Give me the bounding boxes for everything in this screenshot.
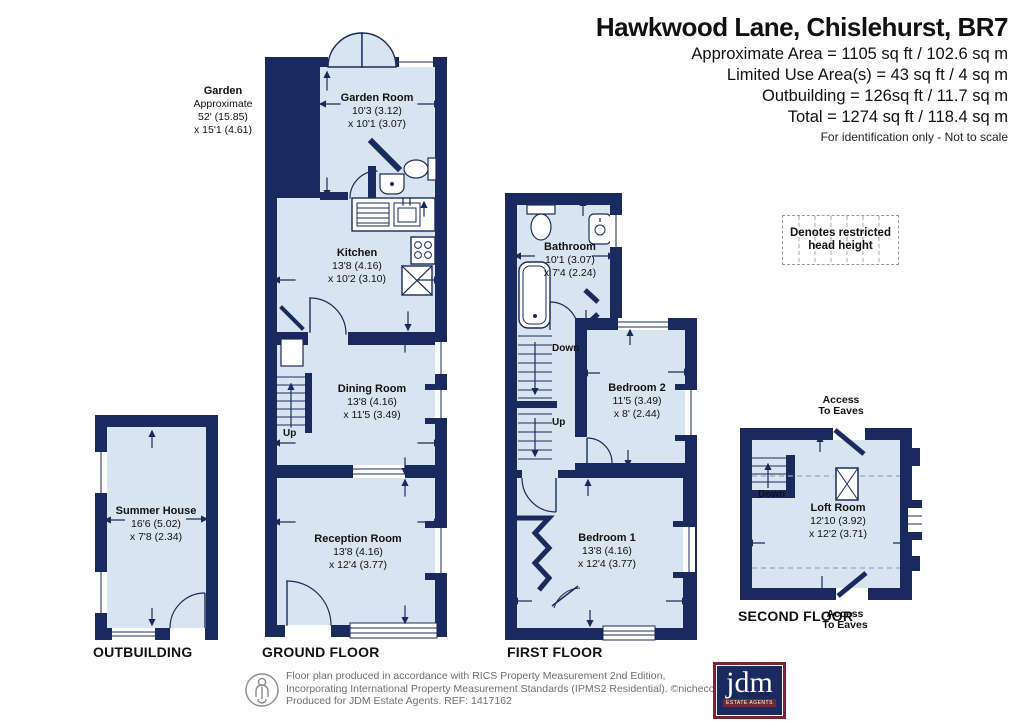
bedroom1-label: Bedroom 1 13'8 (4.16) x 12'4 (3.77)	[578, 532, 636, 571]
loft-room-label: Loft Room 12'10 (3.92) x 12'2 (3.71)	[809, 502, 867, 541]
stairs-up-label-ground: Up	[283, 428, 296, 439]
footer-disclaimer: Floor plan produced in accordance with R…	[286, 670, 752, 708]
bathroom-label: Bathroom 10'1 (3.07) x 7'4 (2.24)	[544, 241, 596, 280]
person-icon	[246, 674, 278, 706]
stairs-down-label-first: Down	[552, 343, 579, 354]
garden-note: Garden Approximate 52' (15.85) x 15'1 (4…	[194, 85, 253, 137]
jdm-logo-subtext: ESTATE AGENTS	[723, 699, 776, 707]
reception-bay-window	[350, 623, 437, 638]
floorplan-page: Hawkwood Lane, Chislehurst, BR7 Approxim…	[0, 0, 1020, 721]
restricted-head-height-legend: Denotes restricted head height	[782, 215, 899, 265]
summer-house-label: Summer House 16'6 (5.02) x 7'8 (2.34)	[116, 505, 197, 544]
garden-room-label: Garden Room 10'3 (3.12) x 10'1 (3.07)	[341, 92, 414, 131]
basin-icon	[589, 214, 611, 244]
outbuilding-label: OUTBUILDING	[93, 644, 192, 660]
approximate-area: Approximate Area = 1105 sq ft / 102.6 sq…	[596, 44, 1008, 64]
second-floor-label: SECOND FLOOR	[738, 608, 853, 624]
first-floor-plan	[505, 193, 697, 640]
jdm-logo: jdm ESTATE AGENTS	[713, 662, 786, 719]
internal-window	[353, 465, 405, 478]
total-area: Total = 1274 sq ft / 118.4 sq m	[596, 107, 1008, 127]
disclaimer: For identification only - Not to scale	[596, 130, 1008, 144]
stairs-up-label-first: Up	[552, 417, 565, 428]
page-title: Hawkwood Lane, Chislehurst, BR7	[596, 12, 1008, 43]
hob-icon	[411, 237, 435, 264]
ground-floor-label: GROUND FLOOR	[262, 644, 380, 660]
stairs-down-label-second: Down	[758, 489, 785, 500]
limited-use-area: Limited Use Area(s) = 43 sq ft / 4 sq m	[596, 65, 1008, 85]
header: Hawkwood Lane, Chislehurst, BR7 Approxim…	[596, 12, 1008, 144]
jdm-logo-text: jdm	[726, 668, 773, 698]
dining-room-label: Dining Room 13'8 (4.16) x 11'5 (3.49)	[338, 383, 406, 422]
chimney-icon	[836, 468, 858, 500]
reception-room-label: Reception Room 13'8 (4.16) x 12'4 (3.77)	[314, 533, 401, 572]
access-to-eaves-top: Access To Eaves	[818, 395, 863, 417]
legend-text: Denotes restricted head height	[790, 227, 891, 253]
toilet-icon	[404, 158, 436, 180]
first-floor-label: FIRST FLOOR	[507, 644, 603, 660]
basin-icon	[380, 174, 404, 194]
loft-window	[905, 500, 922, 540]
outbuilding-area: Outbuilding = 126sq ft / 11.7 sq m	[596, 86, 1008, 106]
bedroom2-label: Bedroom 2 11'5 (3.49) x 8' (2.44)	[608, 382, 665, 421]
stairs-first	[517, 336, 557, 459]
kitchen-label: Kitchen 13'8 (4.16) x 10'2 (3.10)	[328, 247, 386, 286]
garden-room-window	[399, 57, 433, 67]
sink-icon	[352, 198, 435, 231]
